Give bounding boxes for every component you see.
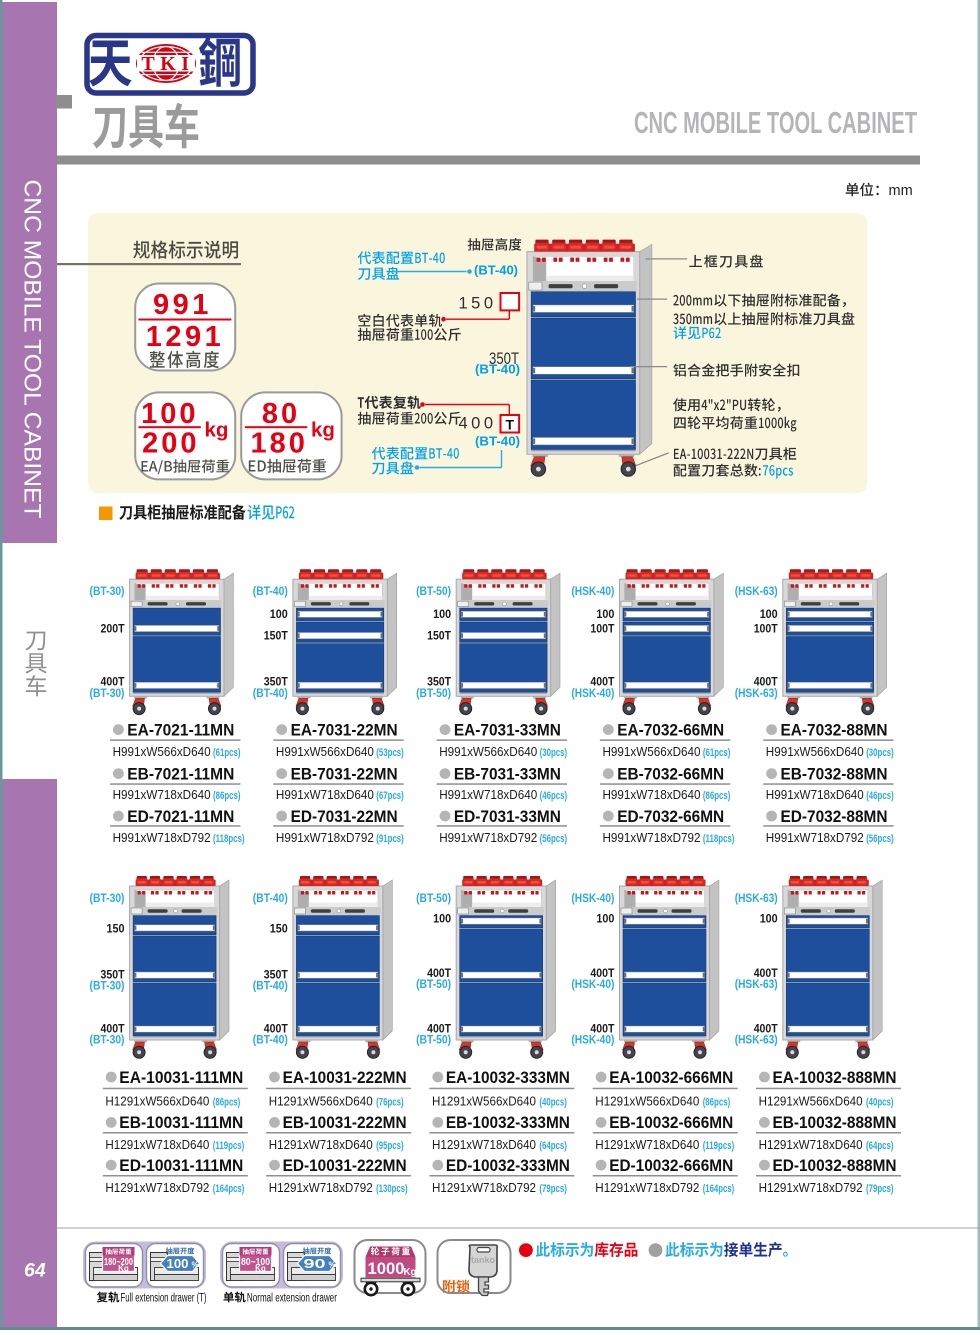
svg-text:H1291xW566xD640: H1291xW566xD640: [269, 1095, 373, 1109]
svg-text:100T: 100T: [590, 621, 615, 635]
svg-text:(46pcs): (46pcs): [866, 790, 894, 802]
svg-text:(HSK-40): (HSK-40): [571, 1033, 614, 1047]
svg-text:(30pcs): (30pcs): [540, 747, 568, 759]
svg-text:(67pcs): (67pcs): [376, 790, 404, 802]
svg-text:H991xW566xD640: H991xW566xD640: [439, 745, 537, 759]
svg-text:(BT-30): (BT-30): [90, 584, 125, 598]
svg-text:Normal extension drawer: Normal extension drawer: [247, 1292, 337, 1304]
svg-text:150: 150: [107, 922, 125, 936]
svg-text:100: 100: [596, 912, 614, 926]
svg-text:100: 100: [433, 607, 451, 621]
svg-text:64: 64: [24, 1260, 46, 1282]
svg-text:(BT-30): (BT-30): [90, 891, 125, 905]
svg-text:(HSK-40): (HSK-40): [571, 584, 614, 598]
svg-text:(BT-30): (BT-30): [90, 979, 125, 993]
svg-text:EA-10032-666MN: EA-10032-666MN: [609, 1069, 733, 1087]
svg-text:Kg: Kg: [118, 1264, 129, 1273]
svg-text:100: 100: [270, 607, 288, 621]
svg-text:(BT-40): (BT-40): [253, 979, 288, 993]
svg-text:H991xW718xD792: H991xW718xD792: [439, 831, 537, 845]
svg-text:(BT-40): (BT-40): [253, 584, 288, 598]
svg-text:H1291xW718xD640: H1291xW718xD640: [595, 1138, 699, 1152]
svg-text:EB-7032-66MN: EB-7032-66MN: [617, 765, 724, 783]
svg-text:%: %: [192, 1261, 199, 1270]
svg-text:ED-7031-22MN: ED-7031-22MN: [291, 808, 398, 826]
svg-text:(HSK-40): (HSK-40): [571, 977, 614, 991]
svg-text:150T: 150T: [427, 628, 452, 642]
svg-text:H1291xW718xD640: H1291xW718xD640: [759, 1138, 863, 1152]
svg-text:H1291xW718xD792: H1291xW718xD792: [105, 1181, 209, 1195]
svg-text:H1291xW566xD640: H1291xW566xD640: [759, 1095, 863, 1109]
svg-text:H1291xW566xD640: H1291xW566xD640: [595, 1095, 699, 1109]
svg-text:mm: mm: [889, 183, 913, 199]
svg-text:EA-10031-222MN: EA-10031-222MN: [283, 1069, 407, 1087]
svg-text:80: 80: [262, 398, 300, 430]
svg-text:ED-7031-33MN: ED-7031-33MN: [454, 808, 561, 826]
svg-text:150T: 150T: [264, 628, 289, 642]
svg-text:(HSK-63): (HSK-63): [735, 977, 778, 991]
svg-text:H991xW718xD792: H991xW718xD792: [276, 831, 374, 845]
svg-text:H991xW718xD792: H991xW718xD792: [766, 831, 864, 845]
svg-text:EB-7031-33MN: EB-7031-33MN: [454, 765, 561, 783]
svg-text:(64pcs): (64pcs): [539, 1140, 567, 1152]
svg-text:ED-7032-88MN: ED-7032-88MN: [781, 808, 888, 826]
svg-text:100: 100: [760, 912, 778, 926]
svg-text:EA-10031-111MN: EA-10031-111MN: [119, 1069, 243, 1087]
svg-text:(46pcs): (46pcs): [540, 790, 568, 802]
svg-text:(95pcs): (95pcs): [376, 1140, 404, 1152]
svg-text:(HSK-40): (HSK-40): [571, 686, 614, 700]
svg-text:kg: kg: [311, 419, 335, 442]
svg-text:(BT-40): (BT-40): [475, 434, 520, 449]
svg-text:H1291xW718xD792: H1291xW718xD792: [269, 1181, 373, 1195]
svg-text:kg: kg: [205, 419, 229, 442]
svg-text:CNC MOBILE TOOL CABINET: CNC MOBILE TOOL CABINET: [634, 105, 917, 140]
svg-text:EA-7031-22MN: EA-7031-22MN: [291, 721, 398, 739]
svg-text:(86pcs): (86pcs): [703, 790, 731, 802]
svg-text:(HSK-63): (HSK-63): [735, 1033, 778, 1047]
svg-text:%: %: [329, 1261, 336, 1270]
svg-text:(61pcs): (61pcs): [703, 747, 731, 759]
svg-text:EB-10032-888MN: EB-10032-888MN: [773, 1114, 897, 1132]
svg-text:(56pcs): (56pcs): [866, 833, 894, 845]
svg-text:(118pcs): (118pcs): [703, 833, 735, 845]
svg-text:EA-7031-33MN: EA-7031-33MN: [454, 721, 561, 739]
svg-text:(86pcs): (86pcs): [703, 1097, 731, 1109]
svg-text:(BT-40): (BT-40): [474, 263, 518, 278]
svg-text:200T: 200T: [101, 621, 126, 635]
svg-text:H991xW718xD792: H991xW718xD792: [113, 831, 211, 845]
svg-text:(164pcs): (164pcs): [703, 1183, 735, 1195]
svg-text:H1291xW566xD640: H1291xW566xD640: [105, 1095, 209, 1109]
svg-text:(HSK-40): (HSK-40): [571, 891, 614, 905]
svg-text:(79pcs): (79pcs): [866, 1183, 894, 1195]
svg-text:H991xW566xD640: H991xW566xD640: [276, 745, 374, 759]
svg-text:100: 100: [760, 607, 778, 621]
svg-text:ED-10031-222MN: ED-10031-222MN: [283, 1157, 407, 1175]
svg-text:100T: 100T: [754, 621, 779, 635]
svg-text:400: 400: [459, 415, 497, 433]
svg-text:(HSK-63): (HSK-63): [735, 891, 778, 905]
svg-text:(119pcs): (119pcs): [213, 1140, 245, 1152]
svg-text:(86pcs): (86pcs): [213, 790, 241, 802]
svg-text:ED-10032-333MN: ED-10032-333MN: [446, 1157, 570, 1175]
svg-text:(BT-50): (BT-50): [416, 686, 451, 700]
svg-text:EB-7031-22MN: EB-7031-22MN: [291, 765, 398, 783]
svg-text:(HSK-63): (HSK-63): [735, 686, 778, 700]
svg-text:(30pcs): (30pcs): [866, 747, 894, 759]
svg-text:(91pcs): (91pcs): [376, 833, 404, 845]
svg-text:EB-7032-88MN: EB-7032-88MN: [781, 765, 888, 783]
svg-text:(HSK-63): (HSK-63): [735, 584, 778, 598]
svg-text:CNC MOBILE TOOL CABINET: CNC MOBILE TOOL CABINET: [19, 180, 46, 519]
svg-text:EA-7032-66MN: EA-7032-66MN: [617, 721, 724, 739]
svg-text:(BT-40): (BT-40): [253, 686, 288, 700]
svg-text:H991xW718xD792: H991xW718xD792: [603, 831, 701, 845]
svg-text:(BT-40): (BT-40): [253, 1033, 288, 1047]
svg-text:EB-7021-11MN: EB-7021-11MN: [127, 765, 234, 783]
svg-text:(119pcs): (119pcs): [703, 1140, 735, 1152]
svg-text:Kg: Kg: [403, 1267, 416, 1278]
svg-text:H1291xW718xD792: H1291xW718xD792: [759, 1181, 863, 1195]
svg-text:EB-10031-111MN: EB-10031-111MN: [119, 1114, 243, 1132]
svg-text:EA-10032-888MN: EA-10032-888MN: [773, 1069, 897, 1087]
svg-text:(40pcs): (40pcs): [866, 1097, 894, 1109]
svg-text:(79pcs): (79pcs): [539, 1183, 567, 1195]
svg-text:H991xW718xD640: H991xW718xD640: [113, 788, 211, 802]
svg-text:150: 150: [459, 295, 497, 313]
svg-text:H1291xW718xD640: H1291xW718xD640: [105, 1138, 209, 1152]
svg-text:100: 100: [433, 912, 451, 926]
svg-text:EB-10032-333MN: EB-10032-333MN: [446, 1114, 570, 1132]
svg-text:(BT-50): (BT-50): [416, 977, 451, 991]
svg-text:(BT-30): (BT-30): [90, 1033, 125, 1047]
svg-text:100: 100: [141, 398, 198, 430]
svg-text:ED-7021-11MN: ED-7021-11MN: [127, 808, 234, 826]
svg-text:(BT-50): (BT-50): [416, 1033, 451, 1047]
svg-text:EA-10032-333MN: EA-10032-333MN: [446, 1069, 570, 1087]
svg-text:ED-7032-66MN: ED-7032-66MN: [617, 808, 724, 826]
svg-text:ED-10032-666MN: ED-10032-666MN: [609, 1157, 733, 1175]
svg-text:H991xW566xD640: H991xW566xD640: [766, 745, 864, 759]
svg-text:Full extension drawer (T): Full extension drawer (T): [121, 1292, 207, 1304]
svg-text:ED-10031-111MN: ED-10031-111MN: [119, 1157, 243, 1175]
svg-text:1000: 1000: [368, 1259, 405, 1278]
svg-text:TKI: TKI: [141, 53, 194, 75]
svg-text:EB-10031-222MN: EB-10031-222MN: [283, 1114, 407, 1132]
svg-text:991: 991: [153, 289, 212, 321]
svg-text:H991xW718xD640: H991xW718xD640: [766, 788, 864, 802]
svg-text:tanko: tanko: [471, 1255, 496, 1265]
svg-text:(118pcs): (118pcs): [213, 833, 245, 845]
svg-text:(53pcs): (53pcs): [376, 747, 404, 759]
svg-text:EA-7021-11MN: EA-7021-11MN: [127, 721, 234, 739]
svg-text:(61pcs): (61pcs): [213, 747, 241, 759]
svg-text:T: T: [506, 417, 515, 433]
svg-text:H991xW566xD640: H991xW566xD640: [603, 745, 701, 759]
svg-text:(130pcs): (130pcs): [376, 1183, 408, 1195]
svg-text:Kg: Kg: [255, 1264, 266, 1273]
svg-text:H1291xW718xD640: H1291xW718xD640: [269, 1138, 373, 1152]
svg-text:1291: 1291: [146, 321, 225, 353]
svg-text:H991xW718xD640: H991xW718xD640: [276, 788, 374, 802]
svg-text:100: 100: [596, 607, 614, 621]
svg-text:ED-10032-888MN: ED-10032-888MN: [773, 1157, 897, 1175]
svg-text:90: 90: [304, 1256, 326, 1271]
svg-text:(64pcs): (64pcs): [866, 1140, 894, 1152]
svg-text:H991xW566xD640: H991xW566xD640: [113, 745, 211, 759]
svg-text:(40pcs): (40pcs): [539, 1097, 567, 1109]
svg-text:H1291xW718xD792: H1291xW718xD792: [595, 1181, 699, 1195]
svg-text:(86pcs): (86pcs): [213, 1097, 241, 1109]
svg-text:100: 100: [167, 1256, 189, 1271]
svg-text:180: 180: [251, 428, 308, 460]
svg-text:EB-10032-666MN: EB-10032-666MN: [609, 1114, 733, 1132]
svg-text:H1291xW566xD640: H1291xW566xD640: [432, 1095, 536, 1109]
svg-text:(76pcs): (76pcs): [376, 1097, 404, 1109]
svg-text:EA-7032-88MN: EA-7032-88MN: [781, 721, 888, 739]
svg-text:(BT-50): (BT-50): [416, 891, 451, 905]
svg-text:200: 200: [142, 428, 199, 460]
svg-text:(BT-50): (BT-50): [416, 584, 451, 598]
svg-text:(56pcs): (56pcs): [540, 833, 568, 845]
svg-text:H991xW718xD640: H991xW718xD640: [439, 788, 537, 802]
svg-text:H991xW718xD640: H991xW718xD640: [603, 788, 701, 802]
svg-text:(BT-40): (BT-40): [253, 891, 288, 905]
svg-text:(BT-40): (BT-40): [475, 361, 520, 376]
svg-text:H1291xW718xD792: H1291xW718xD792: [432, 1181, 536, 1195]
svg-text:(BT-30): (BT-30): [90, 686, 125, 700]
svg-text:(164pcs): (164pcs): [213, 1183, 245, 1195]
svg-text:H1291xW718xD640: H1291xW718xD640: [432, 1138, 536, 1152]
svg-text:150: 150: [270, 922, 288, 936]
